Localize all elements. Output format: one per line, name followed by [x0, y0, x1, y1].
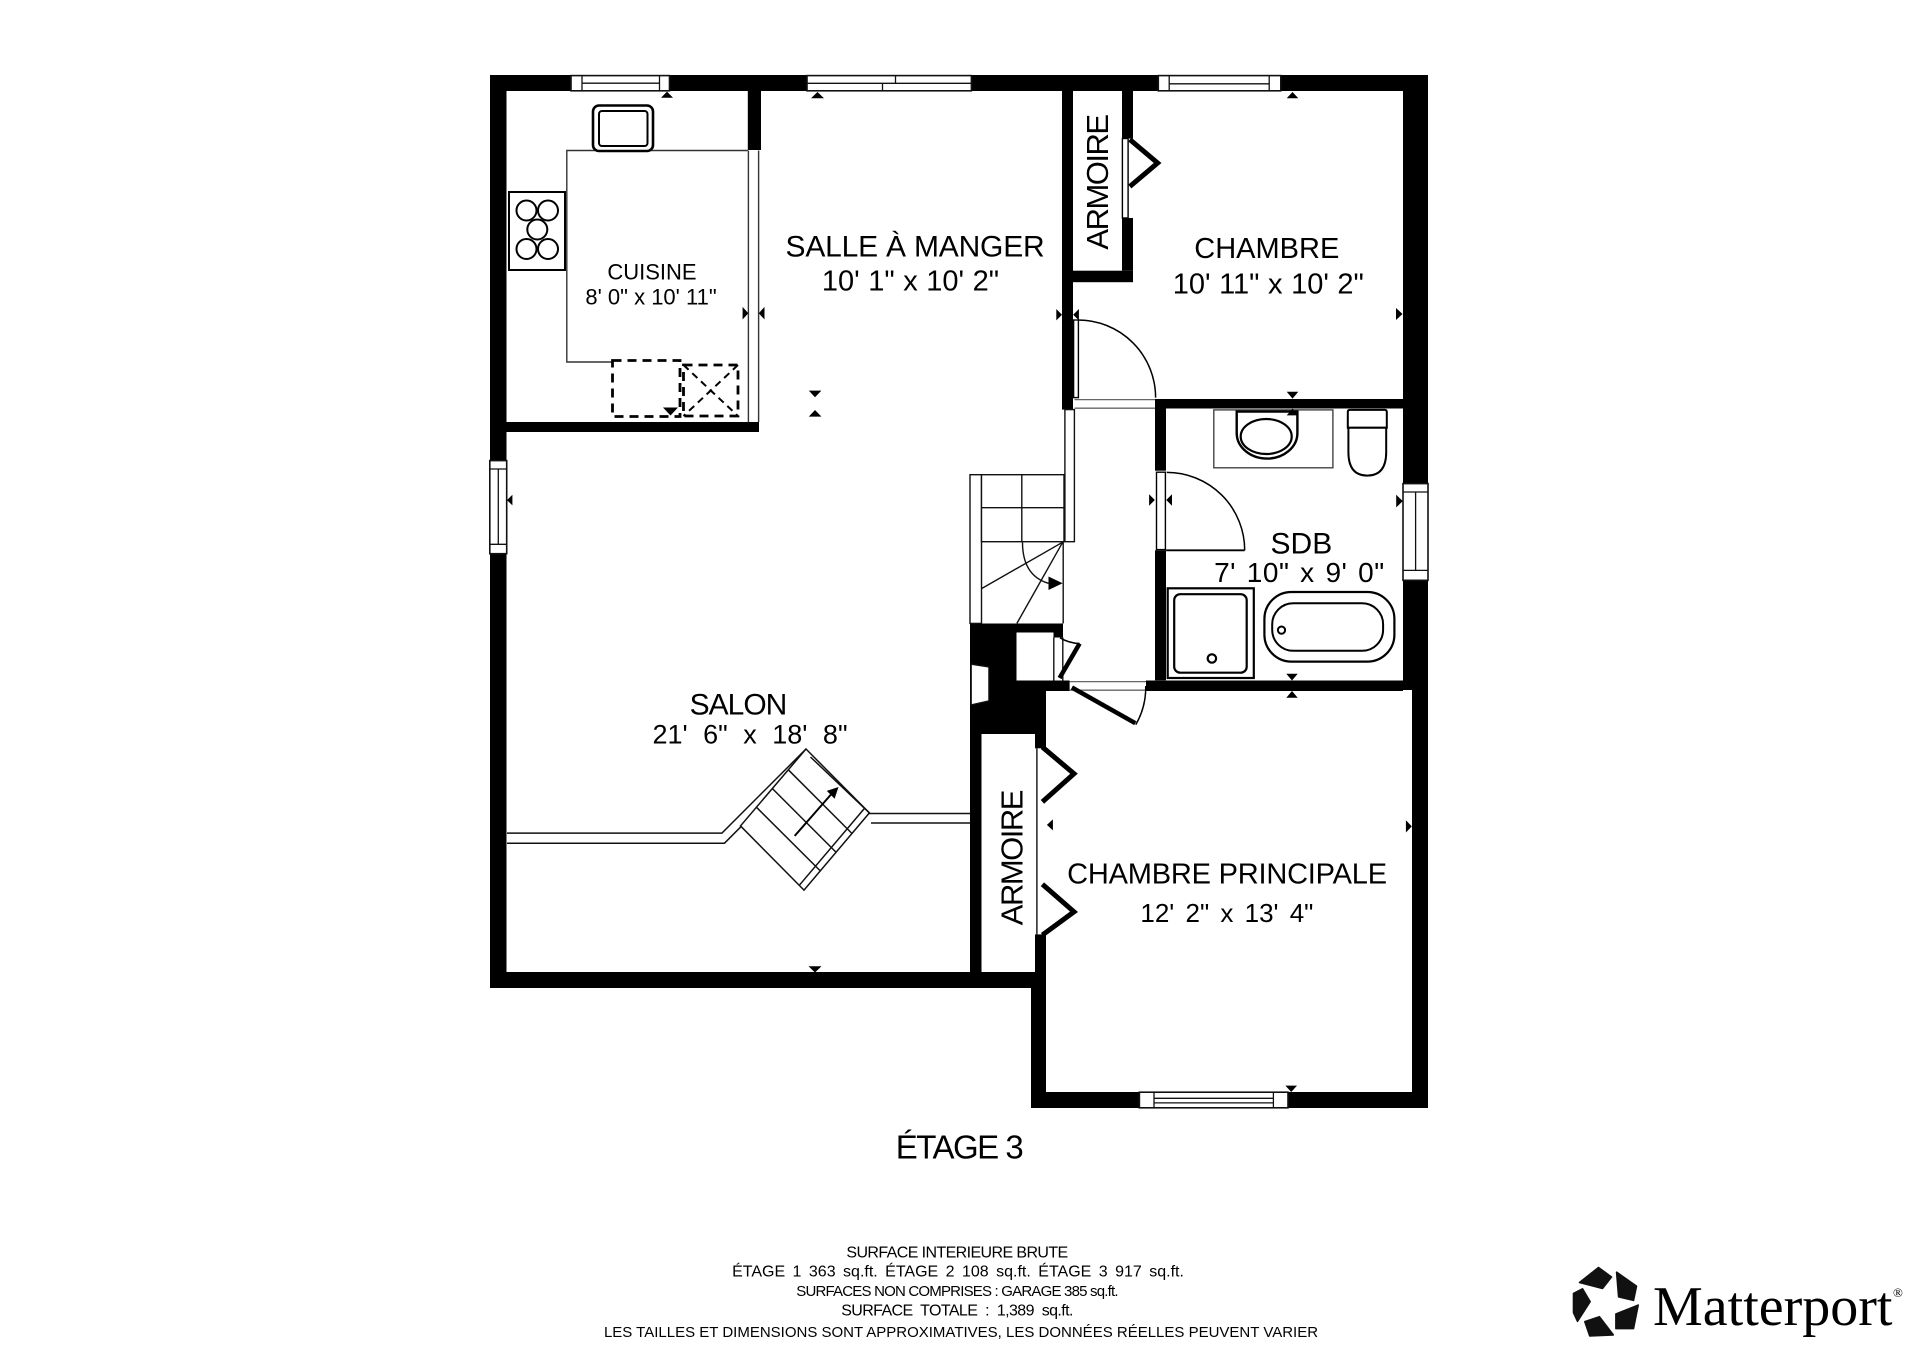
svg-text:CHAMBRE: CHAMBRE [1194, 233, 1339, 265]
svg-text:8' 0" x 10' 11": 8' 0" x 10' 11" [585, 284, 716, 309]
svg-text:®: ® [1893, 1285, 1903, 1300]
svg-text:ÉTAGE 1 363 sq.ft. ÉTAGE 2 1: ÉTAGE 1 363 sq.ft. ÉTAGE 2 108 sq.ft. ÉT… [732, 1262, 1184, 1281]
svg-text:10' 1" x 10' 2": 10' 1" x 10' 2" [822, 266, 999, 298]
svg-text:ARMOIRE: ARMOIRE [995, 790, 1030, 925]
svg-text:21' 6" x 18' 8": 21' 6" x 18' 8" [652, 719, 847, 749]
svg-text:SALLE À MANGER: SALLE À MANGER [786, 230, 1045, 263]
svg-text:7' 10" x 9' 0": 7' 10" x 9' 0" [1214, 557, 1385, 588]
svg-text:ARMOIRE: ARMOIRE [1080, 115, 1115, 250]
svg-text:12' 2" x 13' 4": 12' 2" x 13' 4" [1140, 898, 1313, 928]
svg-text:SDB: SDB [1271, 527, 1333, 560]
svg-text:10' 11" x 10' 2": 10' 11" x 10' 2" [1173, 269, 1364, 301]
svg-text:LES TAILLES ET DIMENSIONS SONT: LES TAILLES ET DIMENSIONS SONT APPROXIMA… [604, 1324, 1318, 1341]
svg-text:SURFACE INTERIEURE BRUTE: SURFACE INTERIEURE BRUTE [846, 1244, 1067, 1261]
svg-text:CUISINE: CUISINE [607, 259, 696, 284]
svg-text:ÉTAGE 3: ÉTAGE 3 [896, 1129, 1023, 1166]
svg-text:Matterport: Matterport [1653, 1276, 1893, 1338]
svg-text:SURFACES NON COMPRISES : GARA: SURFACES NON COMPRISES : GARAGE 385 sq.f… [796, 1283, 1118, 1300]
svg-text:CHAMBRE PRINCIPALE: CHAMBRE PRINCIPALE [1067, 858, 1387, 890]
svg-text:SURFACE TOTALE : 1,389 sq.ft.: SURFACE TOTALE : 1,389 sq.ft. [841, 1302, 1073, 1319]
svg-text:SALON: SALON [690, 689, 787, 722]
